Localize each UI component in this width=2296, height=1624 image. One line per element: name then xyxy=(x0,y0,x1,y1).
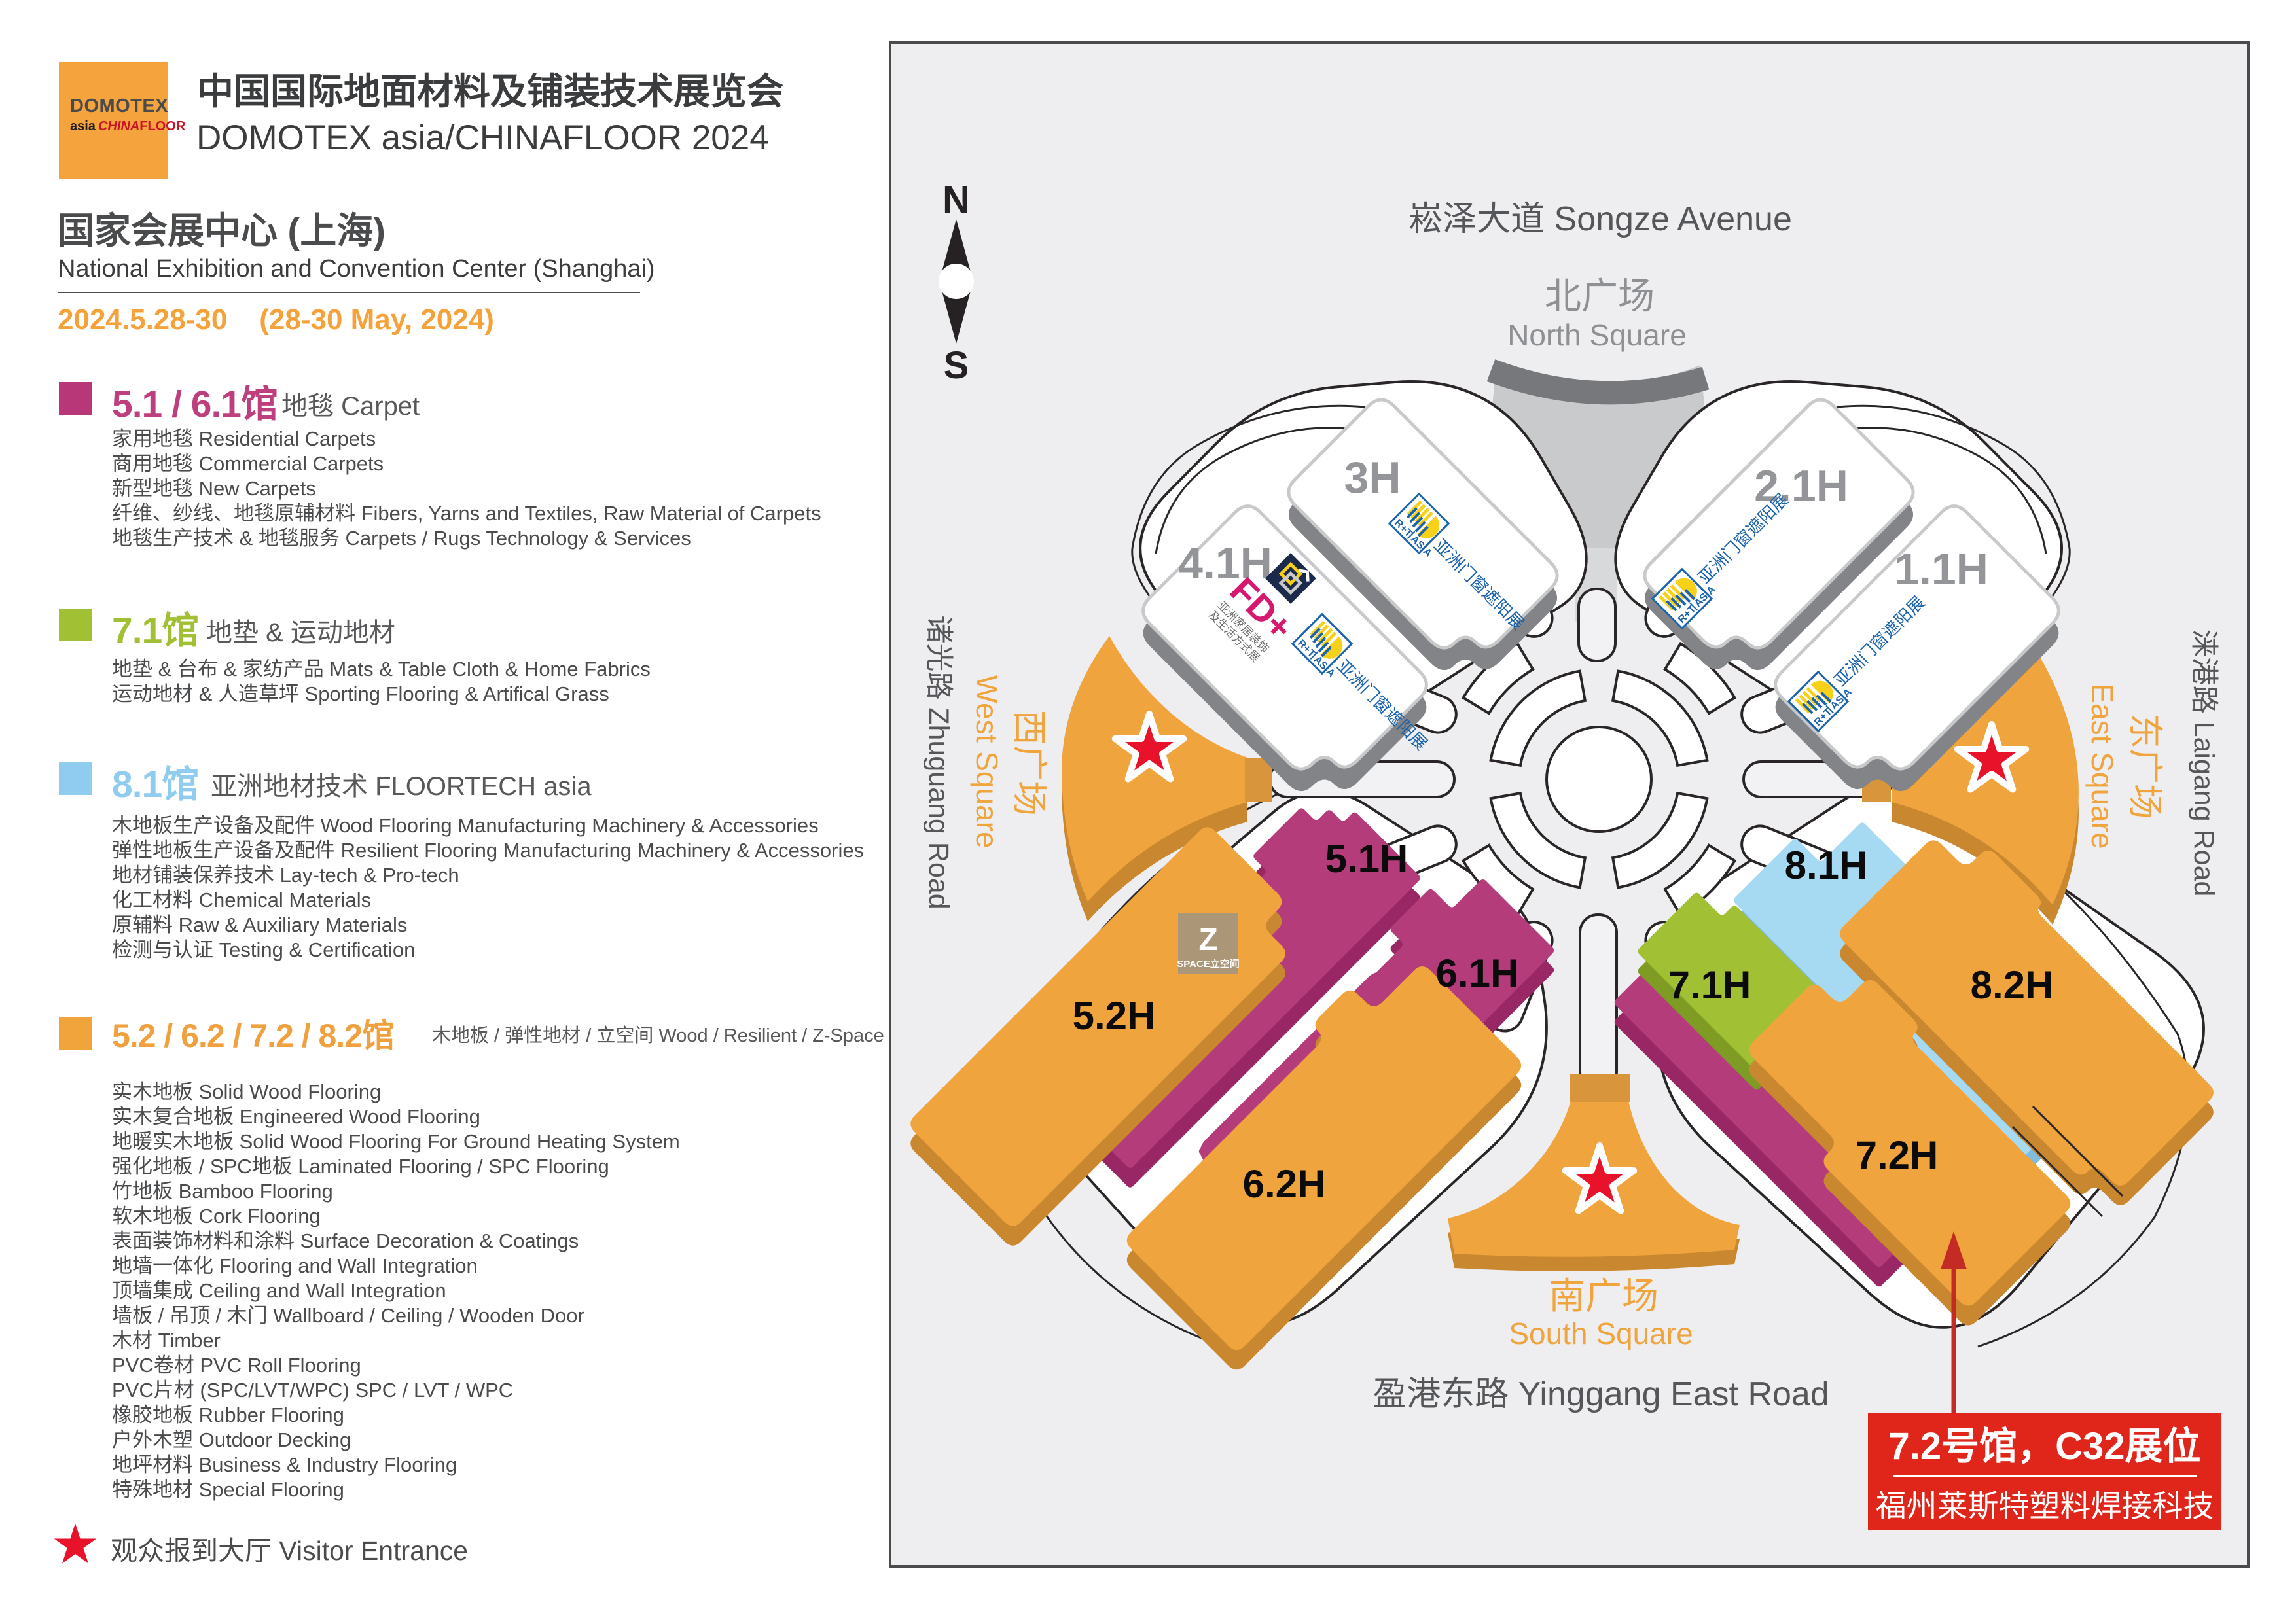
svg-text:8.1H: 8.1H xyxy=(1785,843,1868,887)
svg-text:5.1H: 5.1H xyxy=(1325,837,1408,881)
svg-text:涞港路 Laigang Road: 涞港路 Laigang Road xyxy=(2188,629,2219,897)
svg-text:West Square: West Square xyxy=(970,675,1004,848)
svg-text:崧泽大道 Songze Avenue: 崧泽大道 Songze Avenue xyxy=(1408,200,1792,238)
svg-text:1.1H: 1.1H xyxy=(1894,544,1988,594)
svg-text:SPACE立空间: SPACE立空间 xyxy=(1177,958,1240,970)
svg-text:诸光路 Zhuguang Road: 诸光路 Zhuguang Road xyxy=(923,615,954,909)
svg-text:South Square: South Square xyxy=(1509,1316,1693,1350)
svg-text:6.1H: 6.1H xyxy=(1436,951,1519,995)
svg-text:福州莱斯特塑料焊接科技: 福州莱斯特塑料焊接科技 xyxy=(1876,1489,2214,1523)
svg-text:3H: 3H xyxy=(1344,453,1401,503)
svg-text:7.2号馆，C32展位: 7.2号馆，C32展位 xyxy=(1888,1425,2200,1468)
svg-text:南广场: 南广场 xyxy=(1549,1275,1659,1316)
svg-text:7.1H: 7.1H xyxy=(1668,963,1751,1007)
svg-text:东广场: 东广场 xyxy=(2125,713,2164,819)
svg-text:7.2H: 7.2H xyxy=(1856,1133,1939,1177)
svg-text:S: S xyxy=(944,344,969,387)
svg-text:西广场: 西广场 xyxy=(1009,710,1049,816)
svg-text:8.2H: 8.2H xyxy=(1971,963,2054,1007)
svg-text:北广场: 北广场 xyxy=(1545,275,1655,317)
svg-text:East Square: East Square xyxy=(2085,683,2119,849)
svg-text:Z: Z xyxy=(1198,923,1217,957)
svg-text:盈港东路 Yinggang East Road: 盈港东路 Yinggang East Road xyxy=(1372,1375,1829,1413)
svg-text:6.2H: 6.2H xyxy=(1243,1162,1326,1206)
svg-text:N: N xyxy=(942,179,970,221)
svg-text:5.2H: 5.2H xyxy=(1073,994,1156,1038)
svg-text:North Square: North Square xyxy=(1507,318,1687,352)
